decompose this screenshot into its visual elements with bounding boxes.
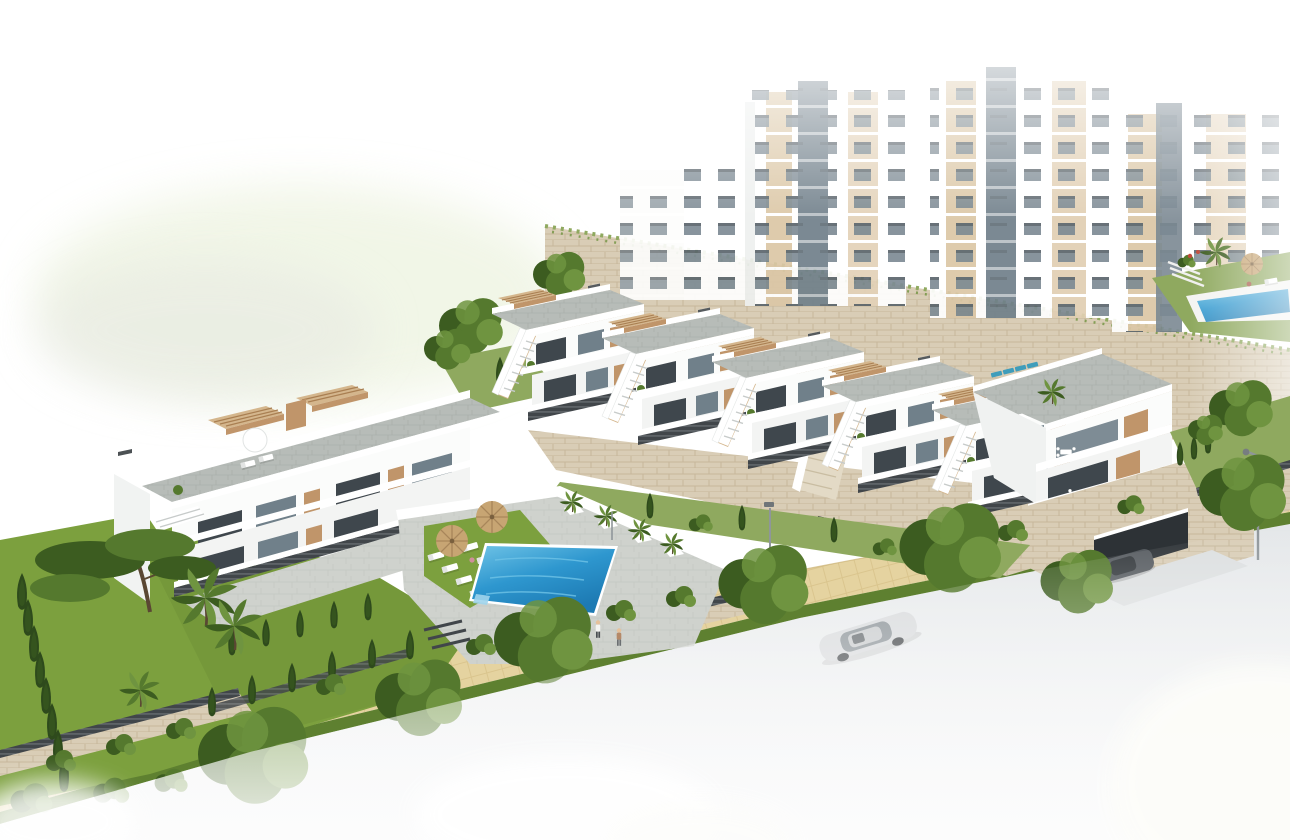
pool-steps <box>473 594 490 605</box>
pool-umbrella <box>436 525 468 557</box>
render-canvas <box>0 0 1290 840</box>
architectural-render: Aerial 3D architectural rendering of a w… <box>0 0 1290 840</box>
roof-parasol <box>243 428 267 452</box>
sunbather <box>469 557 474 562</box>
distance-haze <box>540 30 1290 220</box>
pool-umbrella <box>476 501 508 533</box>
stair-bulkhead <box>286 399 306 431</box>
